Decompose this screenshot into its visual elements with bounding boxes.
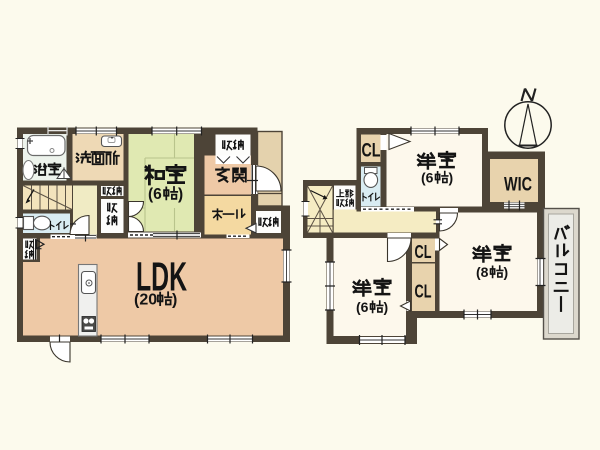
svg-text:): ) — [178, 186, 183, 203]
svg-text:(6: (6 — [356, 299, 369, 315]
svg-text:): ) — [384, 299, 389, 315]
svg-text:): ) — [449, 170, 454, 186]
svg-text:CL: CL — [415, 282, 432, 302]
svg-text:): ) — [504, 264, 509, 280]
svg-text:(8: (8 — [476, 264, 489, 280]
svg-text:(6: (6 — [421, 170, 434, 186]
svg-text:CL: CL — [415, 242, 432, 262]
svg-text:(20: (20 — [134, 292, 157, 309]
svg-text:CL: CL — [362, 141, 381, 162]
svg-text:(6: (6 — [148, 186, 162, 203]
svg-text:): ) — [172, 292, 177, 309]
svg-text:WIC: WIC — [504, 175, 532, 196]
